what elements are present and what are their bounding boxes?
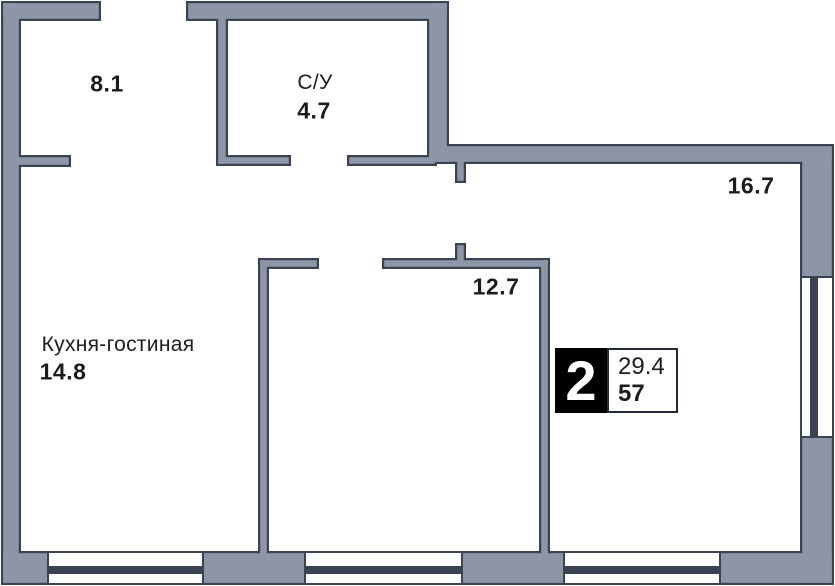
bathroom-area-label: 4.7 — [297, 98, 330, 125]
total-area-value: 57 — [618, 381, 676, 408]
walls-outline-layer — [1, 1, 834, 585]
bathroom-name-label: С/У — [297, 71, 332, 95]
areas-box: 29.4 57 — [607, 348, 678, 413]
room1-area-label: 16.7 — [728, 173, 775, 200]
kitchen-living-area-label: 14.8 — [40, 359, 87, 386]
hall-area-label: 8.1 — [90, 71, 123, 98]
kitchen-living-name-label: Кухня-гостиная — [42, 333, 195, 357]
window-glass — [810, 277, 818, 437]
windows-layer — [48, 277, 833, 584]
floor-plan: 8.1 С/У 4.7 16.7 12.7 Кухня-гостиная 14.… — [0, 0, 835, 586]
floor-plan-drawing — [0, 0, 835, 586]
rooms-count-badge: 2 — [555, 348, 607, 413]
window-glass — [564, 566, 720, 574]
walls-fill-layer — [3, 3, 832, 583]
apartment-info-badge: 2 29.4 57 — [555, 348, 678, 413]
window-glass — [48, 566, 203, 574]
window-glass — [305, 566, 462, 574]
room2-area-label: 12.7 — [473, 274, 520, 301]
living-area-value: 29.4 — [618, 354, 676, 381]
